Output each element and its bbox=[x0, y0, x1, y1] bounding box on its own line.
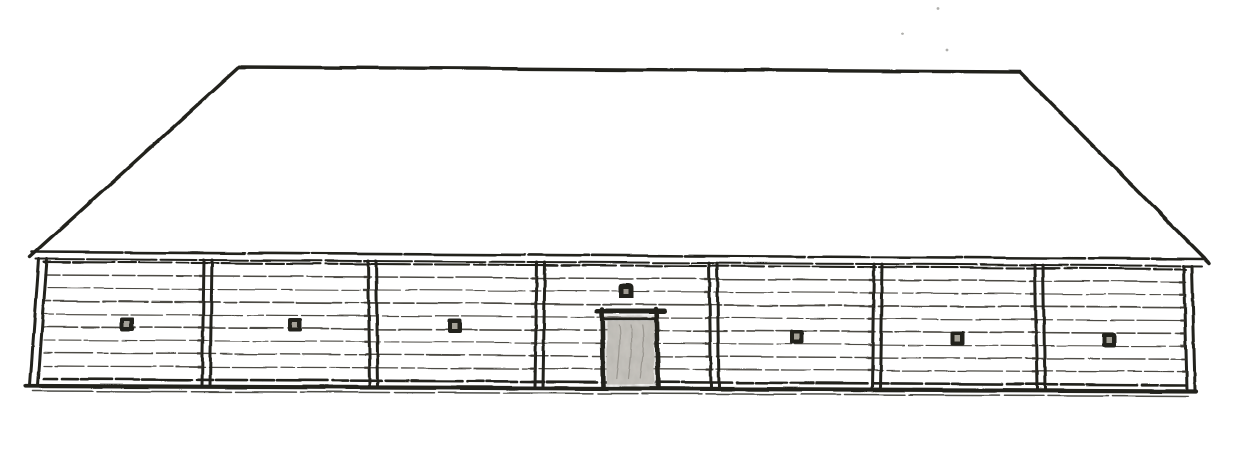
post-plank-notch bbox=[704, 278, 709, 280]
post-plank-notch bbox=[1180, 294, 1185, 296]
post-plank-notch bbox=[1180, 319, 1185, 321]
post-plank-notch bbox=[198, 340, 203, 342]
window-pane bbox=[794, 334, 800, 340]
window-opening bbox=[120, 317, 134, 331]
post-plank-notch bbox=[363, 289, 368, 291]
post-stroke bbox=[376, 261, 378, 386]
post-stroke bbox=[1043, 265, 1045, 389]
post-plank-notch bbox=[868, 305, 873, 307]
post-plank-notch bbox=[867, 356, 872, 358]
post-stroke bbox=[872, 264, 874, 389]
post-plank-notch bbox=[364, 315, 369, 317]
post-plank-notch bbox=[1032, 357, 1037, 359]
post-plank-notch bbox=[706, 355, 711, 357]
post-plank-notch bbox=[365, 354, 370, 356]
post-plank-notch bbox=[198, 314, 203, 316]
post-stroke bbox=[535, 262, 537, 387]
window-opening bbox=[1102, 333, 1116, 347]
transom-window bbox=[619, 283, 634, 298]
window-opening bbox=[448, 319, 462, 333]
post-plank-notch bbox=[199, 275, 204, 277]
post-plank-notch bbox=[705, 330, 710, 332]
post-plank-notch bbox=[198, 301, 203, 303]
window-opening bbox=[288, 318, 302, 332]
post-plank-notch bbox=[1030, 293, 1035, 295]
post-plank-notch bbox=[364, 341, 369, 343]
post-plank-notch bbox=[1181, 345, 1186, 347]
paper-speck bbox=[946, 49, 949, 52]
door-jamb-left bbox=[602, 309, 604, 387]
window-opening bbox=[951, 331, 965, 345]
post-stroke bbox=[880, 264, 882, 389]
post-plank-notch bbox=[869, 279, 874, 281]
post-plank-notch bbox=[705, 342, 710, 344]
post-plank-notch bbox=[705, 317, 710, 319]
post-plank-notch bbox=[530, 354, 535, 356]
post-plank-notch bbox=[363, 276, 368, 278]
post-plank-notch bbox=[1181, 332, 1186, 334]
post-plank-notch bbox=[364, 302, 369, 304]
post-plank-notch bbox=[531, 303, 536, 305]
post-plank-notch bbox=[1031, 318, 1036, 320]
post-plank-notch bbox=[1180, 306, 1185, 308]
post-plank-notch bbox=[1031, 344, 1036, 346]
window-opening bbox=[790, 330, 804, 344]
post-stroke bbox=[210, 260, 212, 386]
post-plank-notch bbox=[197, 353, 202, 355]
window-pane bbox=[1106, 337, 1112, 343]
post-plank-notch bbox=[868, 343, 873, 345]
post-stroke bbox=[202, 260, 204, 386]
post-plank-notch bbox=[532, 277, 537, 279]
paper-speck bbox=[901, 33, 904, 36]
post-plank-notch bbox=[531, 316, 536, 318]
elevation-sketch-canvas bbox=[0, 0, 1254, 473]
post-plank-notch bbox=[868, 318, 873, 320]
post-plank-notch bbox=[198, 327, 203, 329]
post-plank-notch bbox=[1031, 306, 1036, 308]
post-plank-notch bbox=[199, 288, 204, 290]
door-leaf bbox=[607, 321, 654, 384]
window-pane bbox=[955, 335, 961, 341]
window-pane bbox=[452, 323, 458, 329]
post-stroke bbox=[717, 263, 719, 388]
post-plank-notch bbox=[1179, 281, 1184, 283]
window-pane bbox=[292, 322, 298, 328]
post-plank-notch bbox=[1182, 371, 1187, 373]
post-stroke bbox=[543, 262, 545, 387]
post-plank-notch bbox=[1032, 370, 1037, 372]
post-plank-notch bbox=[530, 367, 535, 369]
post-plank-notch bbox=[1030, 280, 1035, 282]
door-jamb-right bbox=[656, 309, 659, 387]
longhouse-elevation-drawing bbox=[0, 0, 1254, 473]
post-plank-notch bbox=[197, 366, 202, 368]
post-plank-notch bbox=[531, 329, 536, 331]
post-plank-notch bbox=[365, 367, 370, 369]
post-plank-notch bbox=[531, 342, 536, 344]
post-plank-notch bbox=[868, 330, 873, 332]
post-plank-notch bbox=[704, 291, 709, 293]
post-plank-notch bbox=[532, 290, 537, 292]
paper-speck bbox=[937, 7, 940, 10]
post-plank-notch bbox=[1181, 358, 1186, 360]
post-plank-notch bbox=[706, 368, 711, 370]
post-plank-notch bbox=[364, 328, 369, 330]
transom-pane bbox=[624, 289, 629, 294]
post-plank-notch bbox=[867, 369, 872, 371]
post-plank-notch bbox=[869, 292, 874, 294]
window-pane bbox=[124, 321, 130, 327]
post-plank-notch bbox=[1031, 331, 1036, 333]
post-plank-notch bbox=[705, 304, 710, 306]
